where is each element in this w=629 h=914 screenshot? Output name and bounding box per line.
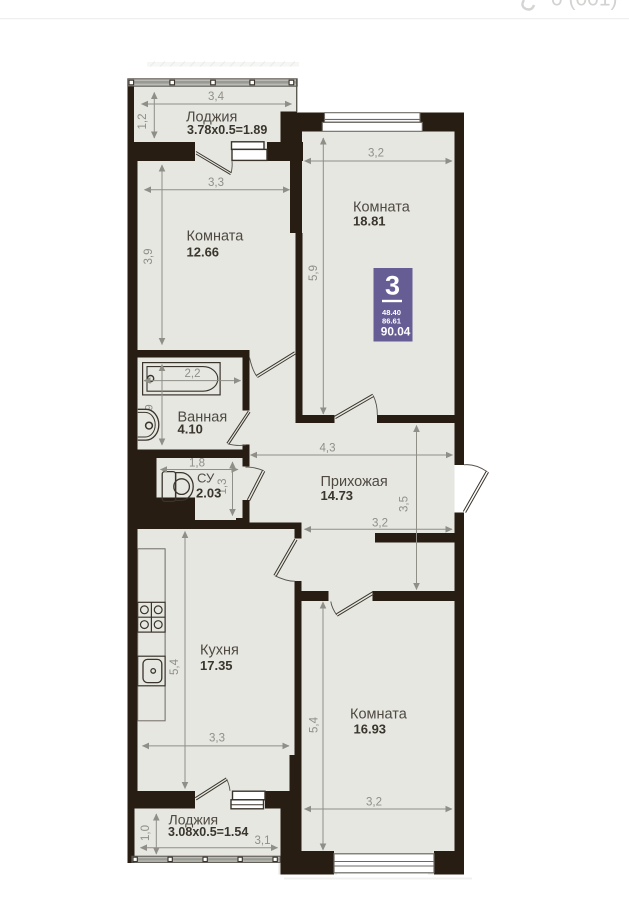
svg-text:12.66: 12.66 [187, 245, 220, 260]
svg-text:5,4: 5,4 [169, 658, 181, 675]
svg-text:17.35: 17.35 [200, 658, 233, 673]
svg-text:3.78х0.5=1.89: 3.78х0.5=1.89 [187, 123, 267, 137]
svg-text:0 (001): 0 (001) [551, 0, 618, 11]
svg-text:2,2: 2,2 [185, 368, 201, 380]
svg-text:90.04: 90.04 [381, 324, 411, 338]
svg-text:18.81: 18.81 [353, 214, 386, 229]
svg-text:3,2: 3,2 [368, 148, 384, 160]
svg-text:2.03: 2.03 [196, 486, 221, 501]
svg-text:3,4: 3,4 [208, 91, 225, 103]
svg-text:3,5: 3,5 [399, 496, 411, 512]
svg-text:14.73: 14.73 [321, 488, 354, 503]
svg-text:1,8: 1,8 [189, 458, 205, 470]
svg-text:3: 3 [385, 271, 400, 301]
svg-text:Кухня: Кухня [200, 643, 239, 659]
svg-text:1,2: 1,2 [137, 114, 149, 130]
svg-text:3,9: 3,9 [143, 249, 155, 265]
svg-text:16.93: 16.93 [354, 722, 387, 737]
svg-text:СУ: СУ [197, 471, 215, 486]
svg-text:3.08х0.5=1.54: 3.08х0.5=1.54 [168, 825, 248, 839]
svg-text:Комната: Комната [187, 229, 245, 245]
svg-text:3,3: 3,3 [208, 177, 224, 189]
svg-text:1,0: 1,0 [140, 825, 152, 841]
svg-text:3,3: 3,3 [209, 733, 225, 745]
svg-text:4,3: 4,3 [320, 443, 336, 455]
svg-text:3,1: 3,1 [255, 835, 271, 847]
svg-text:3,2: 3,2 [372, 518, 388, 530]
svg-text:3,2: 3,2 [366, 797, 382, 809]
svg-text:5,4: 5,4 [309, 716, 321, 733]
svg-text:Комната: Комната [350, 707, 408, 723]
svg-text:4.10: 4.10 [178, 422, 203, 437]
svg-text:5,9: 5,9 [308, 265, 320, 281]
